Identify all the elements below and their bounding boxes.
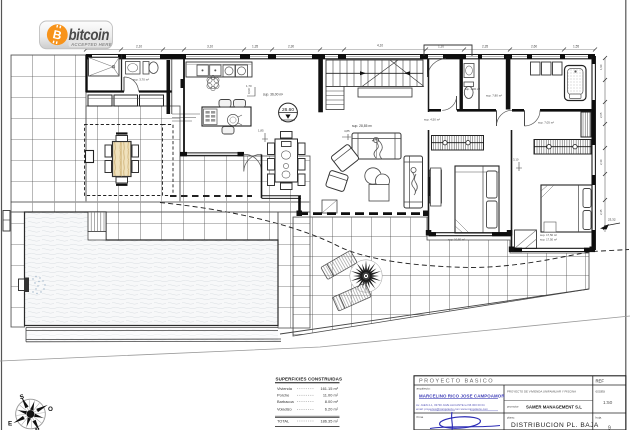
svg-text:Barbacoa: Barbacoa <box>277 399 294 404</box>
svg-text:firma: firma <box>417 415 424 419</box>
svg-text:2,45: 2,45 <box>599 209 603 215</box>
svg-text:2,30: 2,30 <box>288 45 294 49</box>
svg-text:26.60: 26.60 <box>282 107 294 113</box>
svg-text:Porche: Porche <box>277 392 289 397</box>
svg-text:1,90: 1,90 <box>599 64 603 70</box>
svg-text:hoja.: hoja. <box>596 415 603 419</box>
svg-text:2,10: 2,10 <box>136 45 142 49</box>
svg-text:1,55: 1,55 <box>573 45 579 49</box>
svg-text:sup. 4,50 m²: sup. 4,50 m² <box>424 118 440 122</box>
svg-text:Voladizo: Voladizo <box>277 407 292 412</box>
svg-text:2,30: 2,30 <box>599 159 603 165</box>
svg-text:MARCELINO RICO JOSE CAMPOAMOR: MARCELINO RICO JOSE CAMPOAMOR <box>419 393 505 398</box>
svg-text:sup. 7,80 m²: sup. 7,80 m² <box>486 94 502 98</box>
svg-text:9: 9 <box>608 426 611 430</box>
svg-text:arquitecto:: arquitecto: <box>417 387 431 391</box>
svg-text:sup. 17,50 m²: sup. 17,50 m² <box>540 233 557 237</box>
svg-text:sup. 2,30 m²: sup. 2,30 m² <box>465 87 481 91</box>
svg-text:promotor: promotor <box>507 405 519 409</box>
svg-text:PROYECTO BASICO: PROYECTO BASICO <box>419 379 494 385</box>
svg-text:O: O <box>48 406 53 413</box>
svg-text:8.00 m²: 8.00 m² <box>325 399 339 404</box>
svg-text:4,85: 4,85 <box>344 129 350 133</box>
svg-text:1,70: 1,70 <box>246 84 252 88</box>
svg-text:sup. 10,50 m²: sup. 10,50 m² <box>448 238 465 242</box>
svg-text:186.35 m²: 186.35 m² <box>320 418 338 423</box>
svg-text:sup. 17,50 m²: sup. 17,50 m² <box>540 238 557 242</box>
svg-text:TOTAL: TOTAL <box>277 418 290 423</box>
svg-text:SUPERFICIES CONSTRUIDAS: SUPERFICIES CONSTRUIDAS <box>276 377 343 382</box>
svg-text:escala: escala <box>596 389 605 393</box>
svg-text:1:50: 1:50 <box>603 400 613 406</box>
svg-text:plano.: plano. <box>507 415 515 419</box>
svg-text:11.00 m²: 11.00 m² <box>323 392 339 397</box>
svg-text:E: E <box>8 421 12 428</box>
svg-text:1,35: 1,35 <box>252 45 258 49</box>
svg-text:SAMER MANAGEMENT S.L: SAMER MANAGEMENT S.L <box>526 404 582 409</box>
svg-text:161.15 m²: 161.15 m² <box>320 386 338 391</box>
svg-text:3,10: 3,10 <box>207 45 213 49</box>
svg-text:REF: REF <box>596 379 605 384</box>
svg-text:sup. 3,70 m²: sup. 3,70 m² <box>133 78 149 82</box>
svg-text:sup. 7,05 m²: sup. 7,05 m² <box>538 121 554 125</box>
svg-text:2,35: 2,35 <box>482 45 488 49</box>
svg-text:Vivienda: Vivienda <box>277 386 293 391</box>
svg-text:4,10: 4,10 <box>377 44 383 48</box>
svg-text:0,90: 0,90 <box>247 88 251 94</box>
svg-text:email: proyectos@rcarquitecto.: email: proyectos@rcarquitecto.com www.rc… <box>416 407 489 411</box>
svg-text:PROYECTO DE VIVIENDA UNIFAMILI: PROYECTO DE VIVIENDA UNIFAMILIAR Y PISCI… <box>507 389 576 393</box>
svg-text:2,60: 2,60 <box>531 45 537 49</box>
svg-text:1,85: 1,85 <box>258 129 264 133</box>
svg-text:3,10: 3,10 <box>513 158 519 162</box>
svg-text:ACCEPTED HERE: ACCEPTED HERE <box>70 42 113 47</box>
svg-text:23,32: 23,32 <box>608 218 616 222</box>
svg-text:6.20 m²: 6.20 m² <box>325 407 339 412</box>
svg-text:sup. 36,00 m²: sup. 36,00 m² <box>263 93 284 97</box>
svg-text:DISTRIBUCION PL. BAJA: DISTRIBUCION PL. BAJA <box>511 422 599 429</box>
svg-text:2,05: 2,05 <box>599 112 603 118</box>
svg-text:sup. 28,85 m²: sup. 28,85 m² <box>352 124 373 128</box>
